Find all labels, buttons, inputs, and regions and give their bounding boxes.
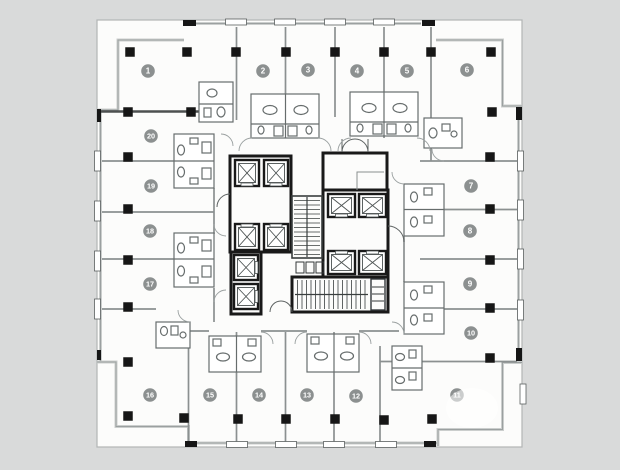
unit-number-label: 14 [255,391,264,400]
column-marker [231,47,241,57]
elevator-shaft [235,160,259,186]
window-mullion [275,19,296,25]
unit-number-badge: 5 [400,64,414,78]
column-marker [330,414,340,424]
unit-number-badge: 1 [141,64,155,78]
unit-number-label: 2 [261,67,266,76]
unit-number-label: 3 [306,66,311,75]
wall-stubs-part [97,109,101,122]
column-marker [123,204,133,214]
unit-number-badge: 18 [143,224,157,238]
unit-number-label: 6 [465,66,470,75]
elevator-shaft [264,160,288,186]
unit-number-badge: 6 [460,63,474,77]
wall-stubs-part [516,107,522,120]
bathroom-pod [350,92,418,136]
column-marker [123,411,133,421]
elevator-door-marker [241,224,253,227]
column-marker [485,353,495,363]
window-mullion [376,442,397,448]
unit-number-badge: 8 [463,224,477,238]
window-mullion [276,442,297,448]
window-mullion [95,151,101,171]
elevator-door-marker [241,183,253,186]
floor-plan-canvas: 1234567891011121314151617181920 [0,0,620,470]
column-marker [486,47,496,57]
bathroom-pod [404,184,444,236]
bathroom-pod [174,134,214,188]
column-marker [123,152,133,162]
building-outline-part [97,20,522,447]
window-mullion [325,19,346,25]
column-marker [485,255,495,265]
elevator-door-marker [255,291,258,303]
unit-number-label: 16 [146,391,154,400]
elevator-door-marker [367,214,379,217]
unit-number-badge: 13 [300,388,314,402]
column-marker [179,413,189,423]
unit-number-badge: 16 [143,388,157,402]
unit-number-badge: 7 [464,179,478,193]
unit-number-badge: 14 [252,388,266,402]
elevator-shaft [359,251,386,274]
elevator-door-marker [270,224,282,227]
bathroom-pod [251,94,319,138]
floor-plan: 1234567891011121314151617181920 [0,0,620,470]
elevator-shaft [235,224,259,250]
window-mullion [227,442,248,448]
bathroom-pod [156,322,190,348]
window-mullion [518,200,524,220]
bathroom-pod [174,233,214,287]
elevator-shaft [328,251,355,274]
unit-number-badge: 15 [203,388,217,402]
unit-number-label: 18 [146,227,154,236]
unit-number-label: 4 [355,67,360,76]
column-marker [123,255,133,265]
window-mullion [518,300,524,320]
window-mullion [324,442,345,448]
column-marker [427,414,437,424]
unit-number-badge: 3 [301,63,315,77]
wall-stubs-part [185,441,197,447]
column-marker [330,47,340,57]
unit-number-label: 17 [146,280,154,289]
column-marker [379,47,389,57]
column-marker [281,414,291,424]
unit-number-label: 19 [147,182,155,191]
unit-number-badge: 19 [144,179,158,193]
column-marker [379,415,389,425]
unit-number-label: 9 [468,280,473,289]
column-marker [182,47,192,57]
unit-number-label: 10 [467,329,475,338]
unit-number-badge: 17 [143,277,157,291]
unit-number-badge: 12 [349,389,363,403]
elevator-shaft [234,255,258,280]
elevator-door-marker [255,262,258,274]
unit-number-label: 7 [469,182,474,191]
column-marker [281,47,291,57]
wall-stubs-part [183,20,196,26]
bathroom-pod [209,336,261,372]
bathroom-pod [392,346,422,390]
wall-stubs-part [422,20,435,26]
window-mullion [226,19,247,25]
bathroom-pod [404,282,444,334]
elevator-door-marker [336,214,348,217]
elevator-door-marker [270,183,282,186]
unit-number-label: 8 [468,227,473,236]
unit-number-badge: 4 [350,64,364,78]
unit-number-badge: 20 [144,129,158,143]
wall-stubs-part [424,441,436,447]
elevator-door-marker [367,251,379,254]
unit-number-badge: 2 [256,64,270,78]
window-mullion [95,201,101,221]
unit-number-label: 15 [206,391,214,400]
building-outline [97,20,522,447]
column-marker [485,152,495,162]
window-mullion [95,299,101,319]
bathroom-pod [199,82,233,122]
column-marker [485,204,495,214]
unit-number-label: 13 [303,391,311,400]
bathroom-pod [307,334,359,372]
window-mullion [95,251,101,271]
wall-stubs-part [516,348,522,361]
column-marker [426,47,436,57]
elevator-door-marker [336,251,348,254]
unit-number-label: 12 [352,392,360,401]
window-mullion [374,19,395,25]
unit-number-label: 5 [405,67,410,76]
window-mullion [518,151,524,171]
column-marker [125,47,135,57]
column-marker [233,414,243,424]
column-marker [123,107,133,117]
window-mullion [520,384,526,404]
unit-number-label: 20 [147,132,155,141]
column-marker [123,302,133,312]
column-marker [186,107,196,117]
window-mullion [518,249,524,269]
elevator-shaft [234,284,258,309]
wall-stubs-part [97,350,101,360]
elevator-shaft [264,224,288,250]
unit-number-badge: 9 [463,277,477,291]
elevator-shaft [359,194,386,217]
unit-number-badge: 10 [464,326,478,340]
elevator-shaft [328,194,355,217]
unit-number-label: 1 [146,67,151,76]
bathroom-pod-part [174,233,214,287]
column-marker [487,107,497,117]
column-marker [123,357,133,367]
watermark-blob [446,388,498,428]
column-marker [485,303,495,313]
bathroom-pod [424,118,462,148]
